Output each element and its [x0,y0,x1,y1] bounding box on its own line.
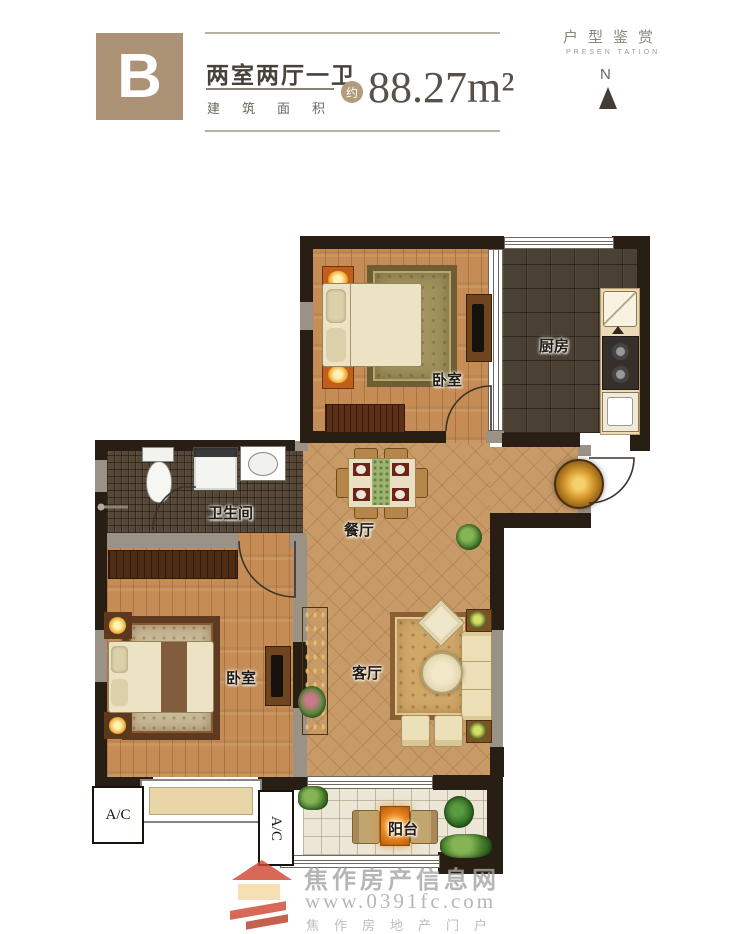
room-label-kitchen: 厨房 [539,335,569,356]
room-label-bedroom-top: 卧室 [432,369,462,390]
room-label-balcony: 阳台 [388,818,418,839]
door-arc-entry [589,458,634,503]
room-label-dining: 餐厅 [344,519,374,540]
room-label-bathroom: 卫生间 [208,502,253,523]
floorplan-canvas: A/C A/C 卧室 厨房 卫生间 餐厅 客厅 卧室 阳台 [0,0,734,934]
door-swing-overlay [0,0,734,934]
door-arc-bathroom [153,487,196,530]
door-arc-bedroom-bottom [239,541,295,597]
door-arc-bedroom-top [446,386,491,431]
towel-bar-knob [98,504,105,511]
floorplan-page: B 两室两厅一卫 建筑面积 约 88.27m² 户型鉴赏 PRESEN TATI… [0,0,734,934]
room-label-living: 客厅 [352,662,382,683]
room-label-bedroom-bottom: 卧室 [226,667,256,688]
